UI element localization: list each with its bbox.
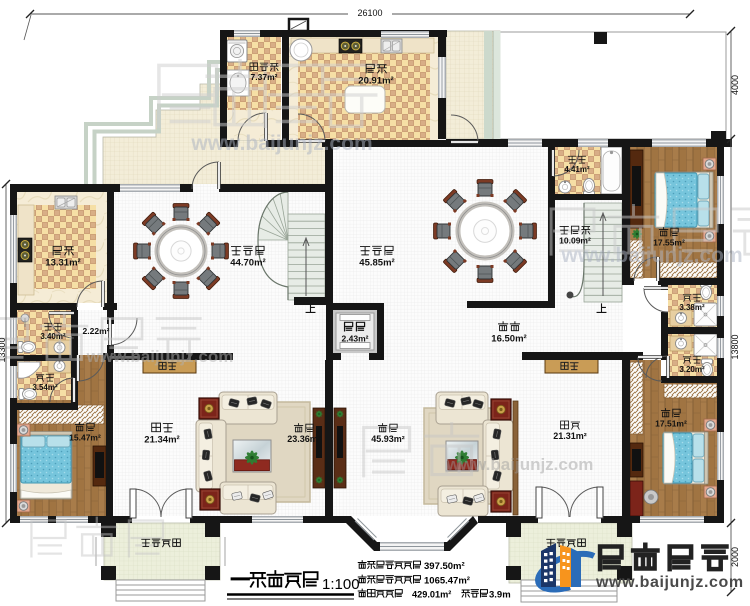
- svg-text:2000: 2000: [730, 547, 740, 567]
- svg-text:3.38m²: 3.38m²: [679, 303, 705, 312]
- svg-text:www.baijunjz.com: www.baijunjz.com: [446, 455, 594, 474]
- svg-text:23.36m²: 23.36m²: [287, 434, 321, 444]
- svg-text:www.baijunjz.com: www.baijunjz.com: [595, 574, 744, 591]
- svg-text:15.47m²: 15.47m²: [69, 433, 101, 443]
- svg-text:7.37m²: 7.37m²: [251, 72, 278, 82]
- svg-text:1065.47m²: 1065.47m²: [424, 576, 470, 587]
- svg-text:2.43m²: 2.43m²: [342, 334, 369, 344]
- svg-text:26100: 26100: [357, 8, 382, 18]
- svg-text:10.09m²: 10.09m²: [559, 236, 591, 246]
- svg-text:397.50m²: 397.50m²: [424, 561, 465, 572]
- svg-text:www.baijunjz.com: www.baijunjz.com: [86, 347, 234, 366]
- svg-text:13300: 13300: [0, 337, 7, 362]
- svg-text:13800: 13800: [730, 334, 740, 359]
- svg-text:4.41m²: 4.41m²: [564, 165, 590, 174]
- svg-text:3.54m²: 3.54m²: [32, 383, 58, 392]
- svg-text:17.51m²: 17.51m²: [655, 419, 687, 429]
- svg-text:4000: 4000: [730, 75, 740, 95]
- svg-text:429.01m²: 429.01m²: [412, 590, 451, 600]
- svg-text:2.22m²: 2.22m²: [83, 326, 110, 336]
- svg-text:3.40m²: 3.40m²: [40, 332, 66, 341]
- svg-text:21.31m²: 21.31m²: [553, 431, 587, 441]
- svg-text:45.93m²: 45.93m²: [371, 434, 405, 444]
- svg-text:3.20m²: 3.20m²: [679, 365, 705, 374]
- svg-text:17.55m²: 17.55m²: [653, 238, 685, 248]
- svg-text:1:100: 1:100: [322, 576, 360, 593]
- svg-text:3.9m: 3.9m: [489, 590, 511, 601]
- svg-text:www.baijunjz.com: www.baijunjz.com: [190, 132, 372, 155]
- svg-text:16.50m²: 16.50m²: [491, 334, 526, 345]
- svg-text:45.85m²: 45.85m²: [359, 258, 394, 269]
- svg-text:44.70m²: 44.70m²: [230, 258, 265, 269]
- svg-text:21.34m²: 21.34m²: [144, 435, 179, 446]
- svg-text:13.31m²: 13.31m²: [45, 258, 80, 269]
- svg-text:www.baijunjz.com: www.baijunjz.com: [560, 244, 742, 267]
- svg-text:20.91m²: 20.91m²: [358, 76, 393, 87]
